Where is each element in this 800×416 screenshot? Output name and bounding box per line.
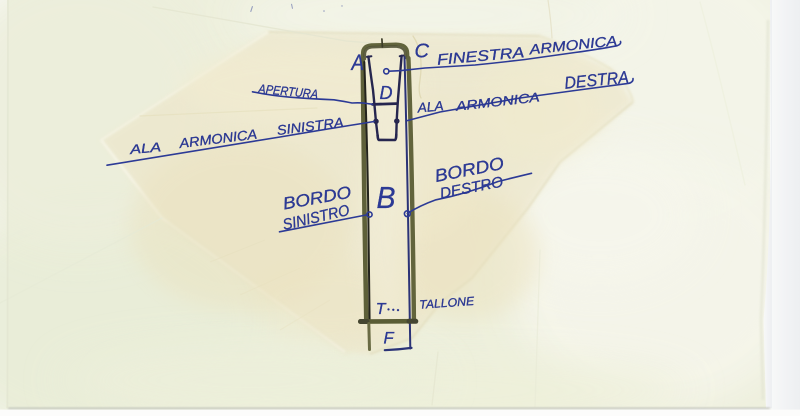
svg-text:ALA: ALA — [128, 139, 161, 157]
svg-text:F: F — [384, 330, 395, 348]
svg-text:ALA: ALA — [416, 98, 444, 115]
svg-text:T: T — [376, 301, 387, 318]
svg-text:C: C — [415, 41, 430, 63]
svg-text:B: B — [377, 180, 396, 215]
svg-text:D: D — [380, 83, 393, 103]
svg-text:A: A — [350, 50, 364, 75]
